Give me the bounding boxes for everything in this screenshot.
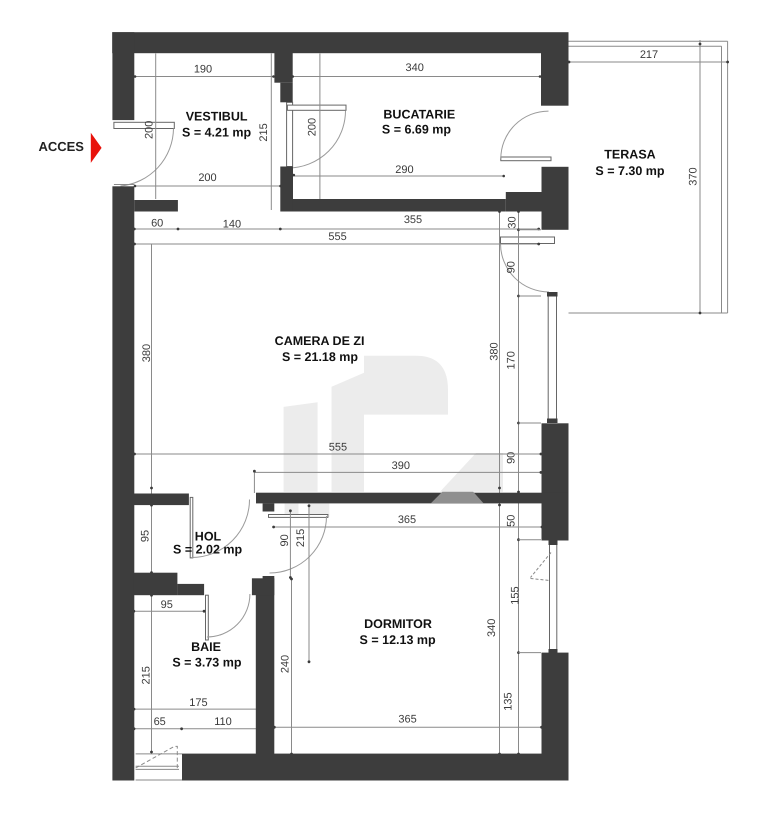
svg-text:390: 390 <box>392 460 410 472</box>
svg-text:200: 200 <box>198 172 216 184</box>
svg-text:110: 110 <box>214 716 232 728</box>
svg-text:355: 355 <box>404 214 422 226</box>
svg-text:30: 30 <box>507 216 519 228</box>
svg-text:190: 190 <box>194 63 212 75</box>
svg-text:200: 200 <box>144 121 156 139</box>
svg-text:175: 175 <box>189 697 207 709</box>
svg-text:340: 340 <box>406 62 424 74</box>
svg-text:380: 380 <box>489 342 501 360</box>
svg-text:ACCES: ACCES <box>38 139 84 154</box>
svg-text:S = 7.30 mp: S = 7.30 mp <box>595 164 664 178</box>
svg-text:TERASA: TERASA <box>604 148 655 162</box>
svg-text:215: 215 <box>141 666 153 684</box>
svg-text:135: 135 <box>502 692 514 710</box>
svg-text:200: 200 <box>306 118 318 136</box>
svg-text:90: 90 <box>506 261 518 273</box>
svg-text:S = 12.13 mp: S = 12.13 mp <box>360 633 436 647</box>
svg-text:VESTIBUL: VESTIBUL <box>186 110 248 124</box>
svg-text:HOL: HOL <box>195 530 222 544</box>
svg-text:95: 95 <box>139 530 151 542</box>
svg-text:95: 95 <box>161 599 173 611</box>
svg-text:240: 240 <box>280 655 292 673</box>
svg-text:CAMERA DE ZI: CAMERA DE ZI <box>275 334 365 348</box>
svg-text:340: 340 <box>486 619 498 637</box>
svg-text:BAIE: BAIE <box>191 640 221 654</box>
svg-text:370: 370 <box>688 167 700 185</box>
svg-text:S = 21.18 mp: S = 21.18 mp <box>282 350 358 364</box>
svg-text:S = 2.02 mp: S = 2.02 mp <box>173 543 242 557</box>
svg-text:290: 290 <box>395 164 413 176</box>
svg-text:555: 555 <box>329 442 347 454</box>
svg-text:65: 65 <box>154 716 166 728</box>
svg-text:S = 4.21 mp: S = 4.21 mp <box>182 126 251 140</box>
svg-text:170: 170 <box>506 351 518 369</box>
svg-text:555: 555 <box>328 231 346 243</box>
svg-text:155: 155 <box>510 586 522 604</box>
svg-text:DORMITOR: DORMITOR <box>364 617 432 631</box>
svg-text:217: 217 <box>640 49 658 61</box>
svg-text:90: 90 <box>279 534 291 546</box>
svg-text:S = 3.73 mp: S = 3.73 mp <box>172 656 241 670</box>
svg-text:60: 60 <box>151 218 163 230</box>
svg-text:215: 215 <box>295 529 307 547</box>
svg-text:215: 215 <box>258 123 270 141</box>
svg-text:BUCATARIE: BUCATARIE <box>383 108 455 122</box>
svg-text:50: 50 <box>506 515 518 527</box>
svg-text:365: 365 <box>398 714 416 726</box>
svg-text:380: 380 <box>141 344 153 362</box>
svg-text:365: 365 <box>398 514 416 526</box>
svg-text:S = 6.69 mp: S = 6.69 mp <box>382 123 451 137</box>
svg-text:140: 140 <box>223 219 241 231</box>
